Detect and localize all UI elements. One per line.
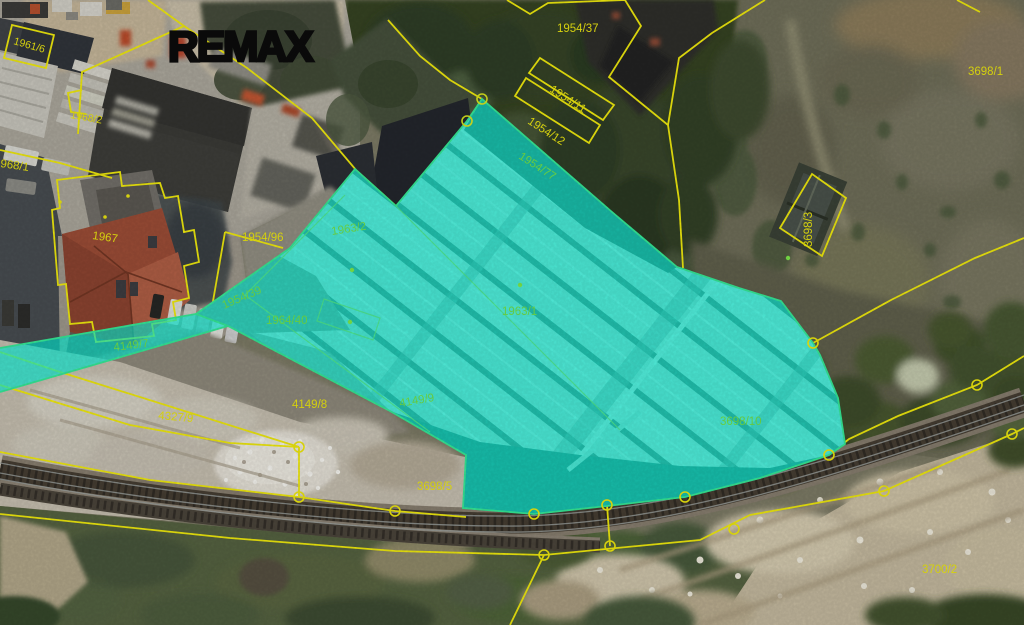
svg-text:REMAX: REMAX (168, 24, 313, 71)
